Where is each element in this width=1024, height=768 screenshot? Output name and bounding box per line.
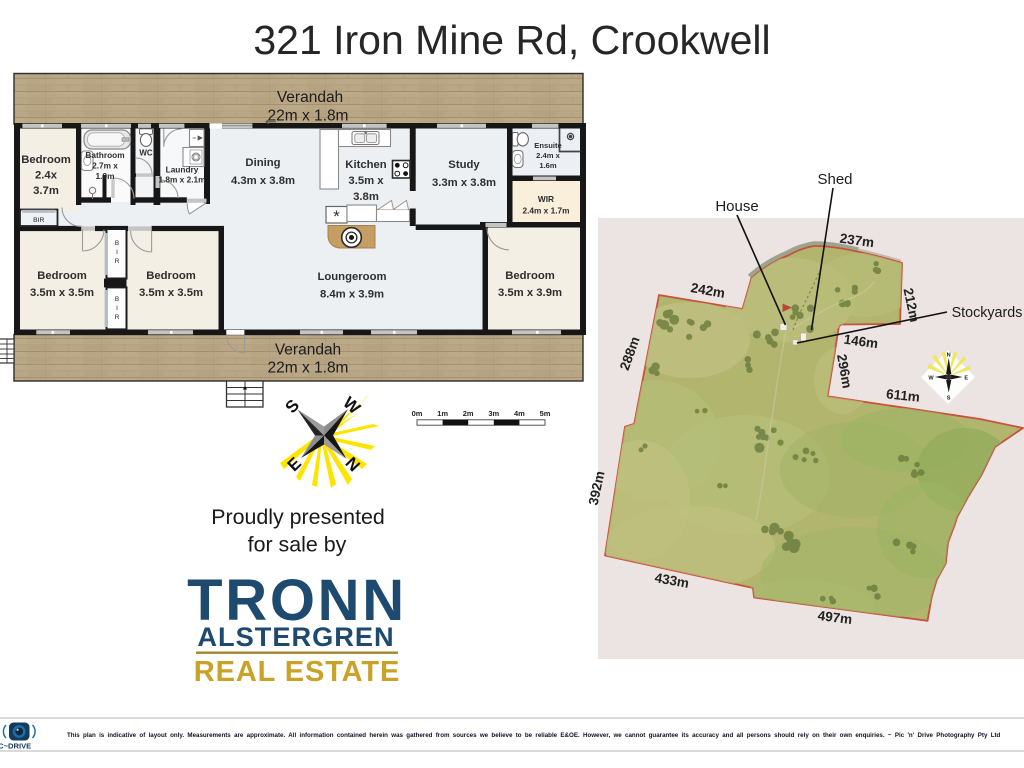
svg-text:Bedroom: Bedroom — [21, 154, 71, 166]
svg-text:R: R — [115, 314, 120, 321]
svg-text:S: S — [947, 396, 951, 402]
svg-text:B: B — [115, 240, 119, 247]
svg-text:3.5m x: 3.5m x — [348, 175, 384, 187]
svg-text:2.4m x 1.7m: 2.4m x 1.7m — [522, 206, 569, 216]
svg-text:WIR: WIR — [538, 194, 554, 204]
svg-text:IC~DRIVE: IC~DRIVE — [0, 742, 31, 751]
svg-text:Dining: Dining — [245, 157, 280, 169]
svg-text:Kitchen: Kitchen — [345, 159, 387, 171]
svg-text:1.8m x 2.1m: 1.8m x 2.1m — [158, 175, 205, 185]
svg-text:3.5m x 3.5m: 3.5m x 3.5m — [139, 287, 203, 299]
svg-text:3.8m: 3.8m — [353, 191, 379, 203]
svg-text:B: B — [115, 296, 119, 303]
svg-text:House: House — [715, 198, 758, 215]
svg-text:Bedroom: Bedroom — [505, 270, 555, 282]
svg-text:2.7m x: 2.7m x — [92, 161, 118, 171]
svg-text:1.6m: 1.6m — [539, 161, 557, 170]
svg-text:8.4m x 3.9m: 8.4m x 3.9m — [320, 289, 384, 301]
svg-text:3.5m x 3.9m: 3.5m x 3.9m — [498, 287, 562, 299]
svg-text:Shed: Shed — [817, 171, 852, 188]
svg-text:Proudly presented: Proudly presented — [211, 505, 385, 529]
svg-text:W: W — [928, 375, 934, 381]
svg-text:Verandah: Verandah — [275, 342, 341, 359]
svg-text:Study: Study — [448, 159, 480, 171]
svg-text:22m x 1.8m: 22m x 1.8m — [268, 360, 349, 377]
svg-text:ALSTERGREN: ALSTERGREN — [197, 621, 394, 652]
svg-text:2.4m x: 2.4m x — [536, 151, 560, 160]
svg-text:1.9m: 1.9m — [96, 171, 115, 181]
svg-text:REAL ESTATE: REAL ESTATE — [194, 656, 400, 688]
svg-text:3m: 3m — [488, 409, 499, 418]
svg-text:E: E — [964, 375, 968, 381]
svg-text:4m: 4m — [514, 409, 525, 418]
svg-text:3.7m: 3.7m — [33, 185, 59, 197]
svg-text:R: R — [115, 258, 120, 265]
svg-text:321 Iron Mine Rd, Crookwell: 321 Iron Mine Rd, Crookwell — [253, 17, 770, 63]
svg-text:I: I — [116, 305, 118, 312]
svg-text:3.3m x 3.8m: 3.3m x 3.8m — [432, 177, 496, 189]
svg-text:2m: 2m — [463, 409, 474, 418]
svg-text:Bedroom: Bedroom — [37, 270, 87, 282]
svg-text:I: I — [116, 249, 118, 256]
svg-text:N: N — [947, 353, 951, 359]
svg-text:Verandah: Verandah — [277, 89, 343, 106]
svg-text:4.3m x 3.8m: 4.3m x 3.8m — [231, 175, 295, 187]
svg-text:Loungeroom: Loungeroom — [317, 271, 386, 283]
svg-text:WC: WC — [139, 149, 153, 158]
svg-text:Laundry: Laundry — [166, 165, 199, 175]
svg-text:2.4x: 2.4x — [35, 170, 58, 182]
svg-text:BIR: BIR — [33, 217, 44, 224]
svg-text:for sale by: for sale by — [248, 533, 347, 557]
svg-text:This plan is indicative of lay: This plan is indicative of layout only. … — [67, 732, 1001, 739]
svg-text:22m x 1.8m: 22m x 1.8m — [268, 108, 349, 125]
svg-text:*: * — [333, 207, 340, 226]
svg-text:Bathroom: Bathroom — [85, 150, 124, 160]
svg-text:Bedroom: Bedroom — [146, 270, 196, 282]
svg-text:3.5m x 3.5m: 3.5m x 3.5m — [30, 287, 94, 299]
svg-text:Stockyards: Stockyards — [952, 305, 1023, 321]
svg-text:1m: 1m — [437, 409, 448, 418]
svg-text:Ensuite: Ensuite — [534, 141, 561, 150]
svg-text:5m: 5m — [540, 409, 551, 418]
svg-text:0m: 0m — [412, 409, 423, 418]
